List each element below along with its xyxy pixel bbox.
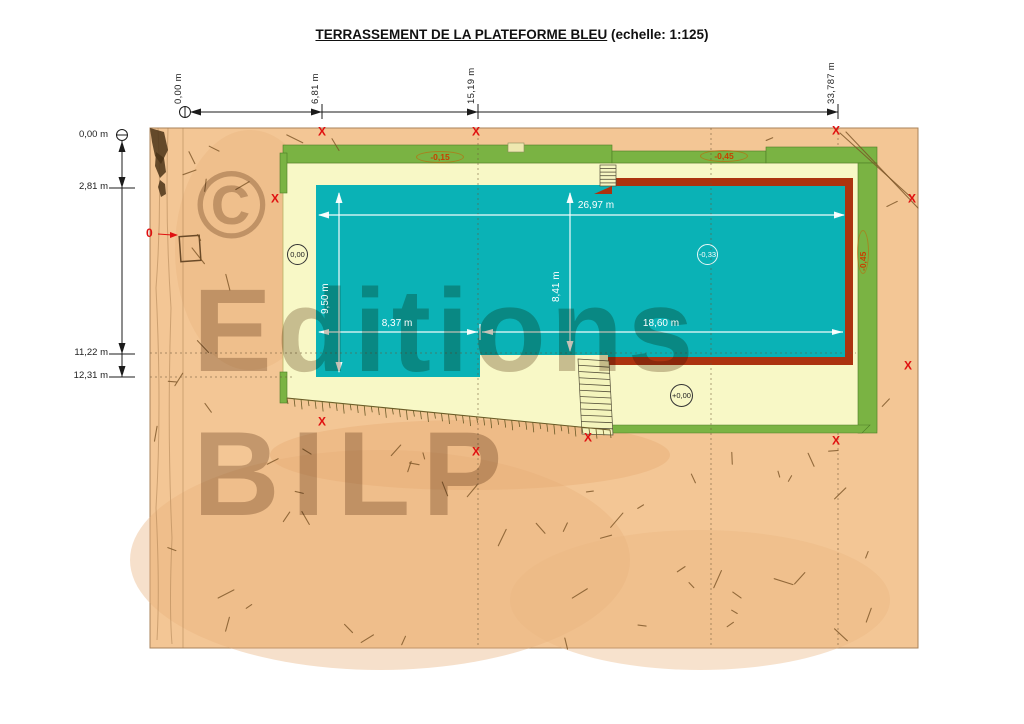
pool-height-left-label: 9,50 m bbox=[320, 252, 331, 314]
origin-marker: 0 bbox=[146, 226, 153, 240]
top-dimension-chain bbox=[180, 104, 839, 119]
survey-mark-x: X bbox=[904, 358, 912, 372]
left-dim-label-1: 2,81 m bbox=[62, 181, 108, 192]
survey-mark-x: X bbox=[271, 191, 279, 205]
page-title: TERRASSEMENT DE LA PLATEFORME BLEU (eche… bbox=[0, 27, 1024, 42]
pool-width-top-label: 26,97 m bbox=[560, 200, 632, 211]
pool-height-right-label: 8,41 m bbox=[551, 240, 562, 302]
top-dim-label-0: 0,00 m bbox=[173, 46, 184, 104]
level-top-strip-left: -0,15 bbox=[416, 151, 464, 163]
survey-mark-x: X bbox=[832, 123, 840, 137]
ramp-bottom bbox=[578, 359, 613, 435]
spot-level-platform-left: 0,00 bbox=[287, 244, 308, 265]
title-scale: (echelle: 1:125) bbox=[607, 27, 708, 42]
level-top-strip-right: -0,45 bbox=[700, 150, 748, 162]
survey-mark-x: X bbox=[472, 124, 480, 138]
survey-mark-x: X bbox=[318, 414, 326, 428]
title-main: TERRASSEMENT DE LA PLATEFORME BLEU bbox=[315, 27, 607, 42]
pool-width-bottom-right-label: 18,60 m bbox=[628, 318, 694, 329]
top-dim-label-3: 33,787 m bbox=[826, 38, 837, 104]
site-plan-page: © Editions BILP TERRASSEMENT DE LA PLATE… bbox=[0, 0, 1024, 724]
spot-level-pool-center: -0,33 bbox=[697, 244, 718, 265]
left-dim-label-0: 0,00 m bbox=[62, 129, 108, 140]
survey-mark-x: X bbox=[908, 191, 916, 205]
survey-mark-x: X bbox=[832, 433, 840, 447]
spot-level-platform-bottom: +0,00 bbox=[670, 384, 693, 407]
top-dim-label-2: 15,19 m bbox=[466, 46, 477, 104]
site-plan-drawing bbox=[0, 0, 1024, 724]
top-dim-label-1: 6,81 m bbox=[310, 46, 321, 104]
stairs-top bbox=[600, 165, 616, 186]
left-dim-label-3: 12,31 m bbox=[62, 370, 108, 381]
pool-width-bottom-left-label: 8,37 m bbox=[365, 318, 429, 329]
survey-mark-x: X bbox=[472, 444, 480, 458]
left-dim-label-2: 11,22 m bbox=[62, 347, 108, 358]
survey-mark-x: X bbox=[318, 124, 326, 138]
pool-area bbox=[316, 185, 845, 377]
survey-mark-x: X bbox=[584, 430, 592, 444]
level-right-strip: -0,45 bbox=[857, 230, 869, 274]
left-dimension-chain bbox=[109, 130, 135, 378]
